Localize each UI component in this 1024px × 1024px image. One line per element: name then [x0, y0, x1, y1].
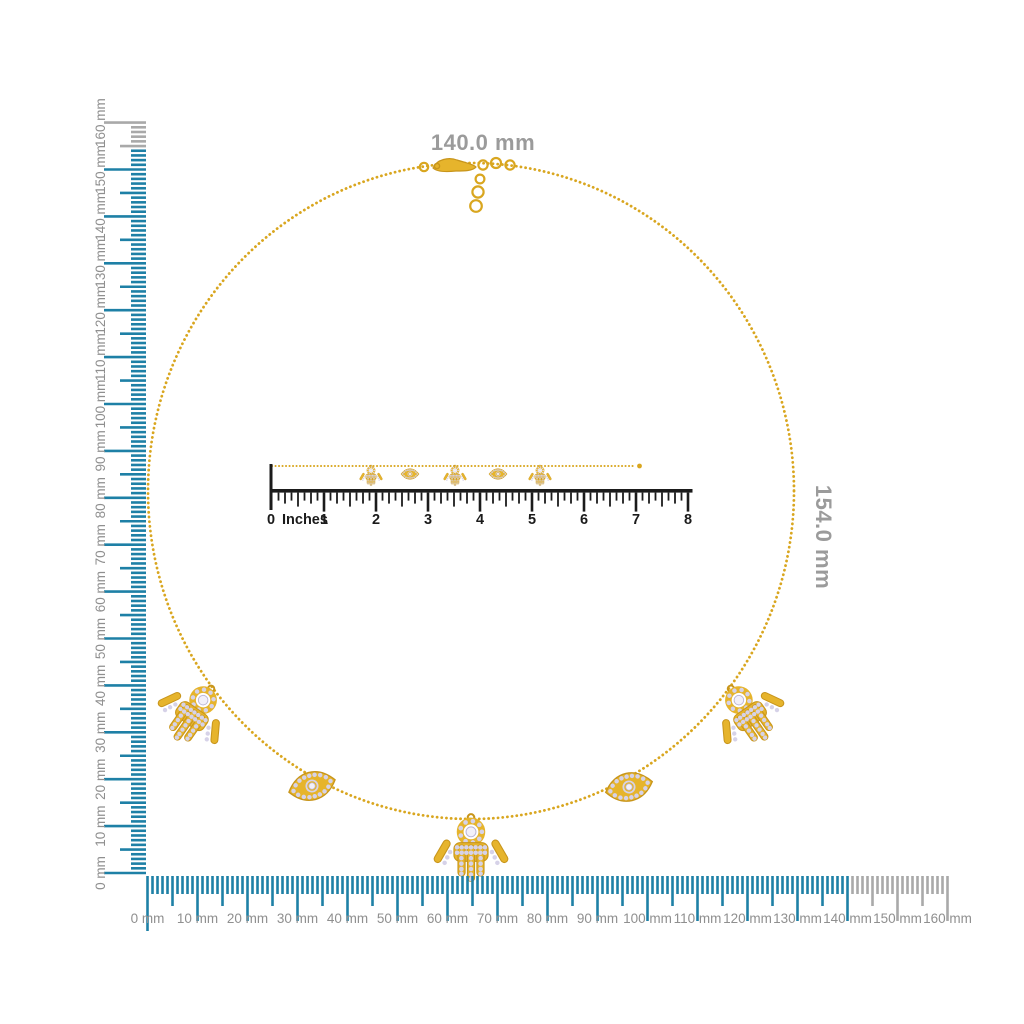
clasp: [420, 158, 515, 212]
v-ruler-label: 70 mm: [93, 524, 108, 565]
v-ruler-label: 80 mm: [93, 477, 108, 518]
v-ruler-label: 10 mm: [93, 805, 108, 846]
hamsa-charm: [145, 665, 243, 761]
product-measurement-figure: 0 mm10 mm20 mm30 mm40 mm50 mm60 mm70 mm8…: [0, 0, 1024, 1024]
h-ruler-label: 80 mm: [527, 911, 568, 926]
h-ruler-label: 30 mm: [277, 911, 318, 926]
v-ruler-label: 60 mm: [93, 571, 108, 612]
v-ruler-label: 90 mm: [93, 430, 108, 471]
hamsa-charm: [433, 814, 509, 881]
h-ruler-label: 60 mm: [427, 911, 468, 926]
inch-ruler-number: 4: [476, 512, 484, 528]
h-ruler-label: 100 mm: [623, 911, 672, 926]
h-ruler-label: 20 mm: [227, 911, 268, 926]
h-ruler-label: 10 mm: [177, 911, 218, 926]
vertical-mm-ruler: 0 mm10 mm20 mm30 mm40 mm50 mm60 mm70 mm8…: [93, 98, 146, 890]
h-ruler-label: 160 mm: [923, 911, 972, 926]
evil-eye-charm: [285, 766, 338, 805]
h-ruler-label: 90 mm: [577, 911, 618, 926]
v-ruler-label: 0 mm: [93, 856, 108, 890]
strand-end-dot: [637, 464, 642, 469]
v-ruler-label: 150 mm: [93, 145, 108, 194]
hamsa-charm: [443, 465, 467, 486]
chain-ring: [478, 160, 487, 169]
v-ruler-label: 20 mm: [93, 759, 108, 800]
inch-ruler-number: 6: [580, 512, 588, 528]
hamsa-charm: [699, 665, 797, 761]
evil-eye-charm: [603, 768, 656, 806]
h-ruler-label: 150 mm: [873, 911, 922, 926]
inch-ruler-number: 3: [424, 512, 432, 528]
h-ruler-label: 0 mm: [131, 911, 165, 926]
v-ruler-label: 140 mm: [93, 192, 108, 241]
necklace: [145, 158, 796, 881]
v-ruler-label: 160 mm: [93, 98, 108, 147]
v-ruler-label: 40 mm: [93, 665, 108, 706]
extender-ring: [470, 200, 482, 212]
horizontal-mm-ruler: 0 mm10 mm20 mm30 mm40 mm50 mm60 mm70 mm8…: [131, 876, 972, 931]
extender-ring: [476, 175, 485, 184]
hamsa-charm: [528, 465, 552, 486]
inch-ruler-spine: [270, 489, 693, 493]
extender-ring: [472, 186, 483, 197]
h-ruler-label: 70 mm: [477, 911, 518, 926]
h-ruler-label: 130 mm: [773, 911, 822, 926]
v-ruler-label: 100 mm: [93, 380, 108, 429]
v-ruler-label: 120 mm: [93, 286, 108, 335]
width-dimension-label: 140.0 mm: [413, 130, 553, 156]
measured-strand: [272, 464, 642, 486]
evil-eye-charm: [401, 469, 419, 480]
hamsa-charm: [359, 465, 383, 486]
inch-ruler-number: 8: [684, 512, 692, 528]
inch-ruler-zero-label: 0: [267, 512, 275, 528]
height-dimension-label: 154.0 mm: [810, 477, 836, 597]
inch-ruler-number: 7: [632, 512, 640, 528]
inch-ruler-number: 1: [320, 512, 328, 528]
v-ruler-label: 30 mm: [93, 712, 108, 753]
inch-ruler-number: 5: [528, 512, 536, 528]
h-ruler-label: 110 mm: [674, 911, 722, 926]
v-ruler-label: 130 mm: [93, 239, 108, 288]
h-ruler-label: 40 mm: [327, 911, 368, 926]
h-ruler-label: 120 mm: [723, 911, 772, 926]
v-ruler-label: 50 mm: [93, 618, 108, 659]
inches-ruler: 0Inches12345678: [267, 464, 693, 528]
v-ruler-label: 110 mm: [93, 333, 108, 381]
h-ruler-label: 140 mm: [823, 911, 872, 926]
h-ruler-label: 50 mm: [377, 911, 418, 926]
evil-eye-charm: [489, 469, 507, 480]
inch-ruler-number: 2: [372, 512, 380, 528]
